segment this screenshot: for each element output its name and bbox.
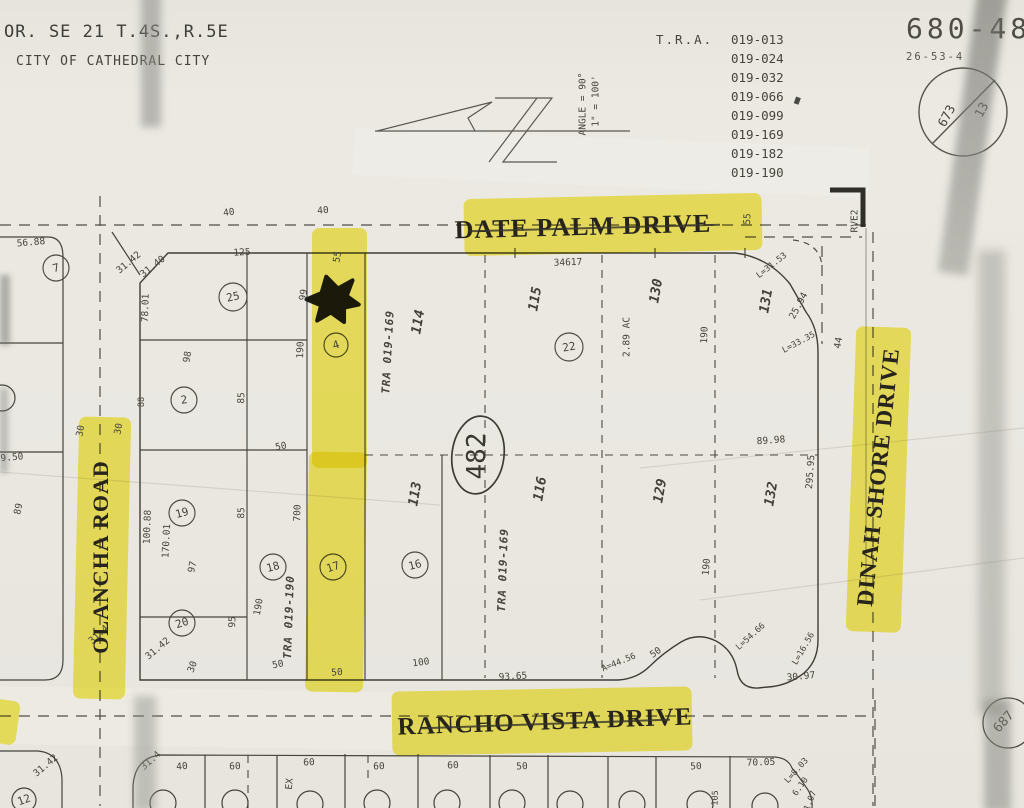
tra-zone-label: TRA 019-190: [282, 575, 296, 659]
dim-label: 700: [293, 504, 303, 521]
dim-label: 190: [700, 326, 710, 343]
scale-note: 1" = 100': [591, 75, 601, 126]
dim-label: 50: [690, 762, 702, 772]
sheet-reference-circle: [919, 68, 1007, 156]
dim-label: 190: [296, 341, 306, 358]
parcel-number: 2: [180, 394, 188, 406]
tra-code: 019-190: [731, 167, 784, 180]
dim-label: 100.88: [143, 510, 154, 545]
parcel-number: 19: [174, 506, 190, 520]
dim-label: 60: [303, 758, 315, 768]
dim-label: 50: [275, 441, 288, 452]
dim-label: 55: [332, 251, 343, 264]
dim-label: 56.88: [16, 237, 45, 249]
dim-label: 50: [331, 668, 343, 678]
tra-code: 019-099: [731, 110, 784, 123]
dim-label: 85: [237, 507, 247, 519]
sheet-code: 26-53-4: [906, 52, 964, 63]
dim-label: 9.50: [0, 452, 24, 463]
dim-label: 50: [271, 659, 284, 671]
block-number: 482: [464, 433, 490, 480]
dim-label: 100: [412, 657, 430, 669]
acreage-label: 2.89 AC: [622, 317, 632, 357]
parcel-number: 16: [407, 558, 423, 572]
tra-code: 019-024: [731, 53, 784, 66]
dim-label: 55: [743, 213, 753, 225]
parcel-number: 18: [265, 560, 281, 574]
dim-label: 60: [447, 761, 459, 771]
map-title-line2: CITY OF CATHEDRAL CITY: [16, 55, 210, 68]
sheet-number: 680-48: [906, 15, 1024, 43]
tra-code: 019-013: [731, 34, 784, 47]
tra-code: 019-032: [731, 72, 784, 85]
dim-label: 40: [317, 206, 329, 216]
dim-label: 93.65: [498, 672, 527, 683]
dim-label: 105: [711, 790, 720, 806]
dim-label: 98: [182, 351, 193, 364]
dim-label: 44: [833, 337, 844, 350]
dim-label: 78.01: [141, 294, 151, 323]
dim-label: 85: [237, 392, 247, 404]
dim-label: 30: [75, 425, 86, 438]
dim-label: 40: [176, 762, 188, 772]
parcel-number: 22: [562, 340, 577, 353]
angle-note: ANGLE = 90°: [578, 73, 588, 136]
dim-label: 34617: [554, 258, 583, 268]
right-edge-street-tag: RVE2: [850, 210, 860, 233]
tra-label: T.R.A.: [656, 34, 713, 47]
dim-label: 30.97: [786, 671, 815, 683]
tra-code: 019-066: [731, 91, 784, 104]
dim-label: 60: [373, 762, 385, 772]
dim-label: 40: [223, 207, 236, 218]
dim-label: 95: [228, 616, 238, 628]
dim-label: 89.98: [756, 435, 785, 446]
dim-label: 70.05: [747, 758, 776, 768]
dim-label: EX: [285, 778, 295, 790]
dim-label: 88: [138, 397, 147, 407]
dim-label: 125: [233, 248, 251, 258]
dim-label: 295.95: [805, 455, 817, 490]
dim-label: 99: [298, 289, 309, 302]
dim-label: 30: [113, 423, 124, 436]
dim-label: 60: [229, 762, 241, 772]
dim-label: 170.01: [161, 524, 172, 559]
dim-label: 50: [516, 762, 528, 772]
tra-code: 019-182: [731, 148, 784, 161]
parcel-number: 25: [225, 290, 240, 304]
scanned-parcel-map: OR. SE 21 T.4S.,R.5E CITY OF CATHEDRAL C…: [0, 0, 1024, 808]
tra-zone-label: TRA 019-169: [496, 528, 510, 612]
dim-label: 89: [13, 502, 25, 515]
dim-label: 97: [187, 560, 199, 573]
dim-label: 190: [702, 558, 713, 576]
tra-code: 019-169: [731, 129, 784, 142]
map-title-line1: OR. SE 21 T.4S.,R.5E: [4, 24, 229, 41]
